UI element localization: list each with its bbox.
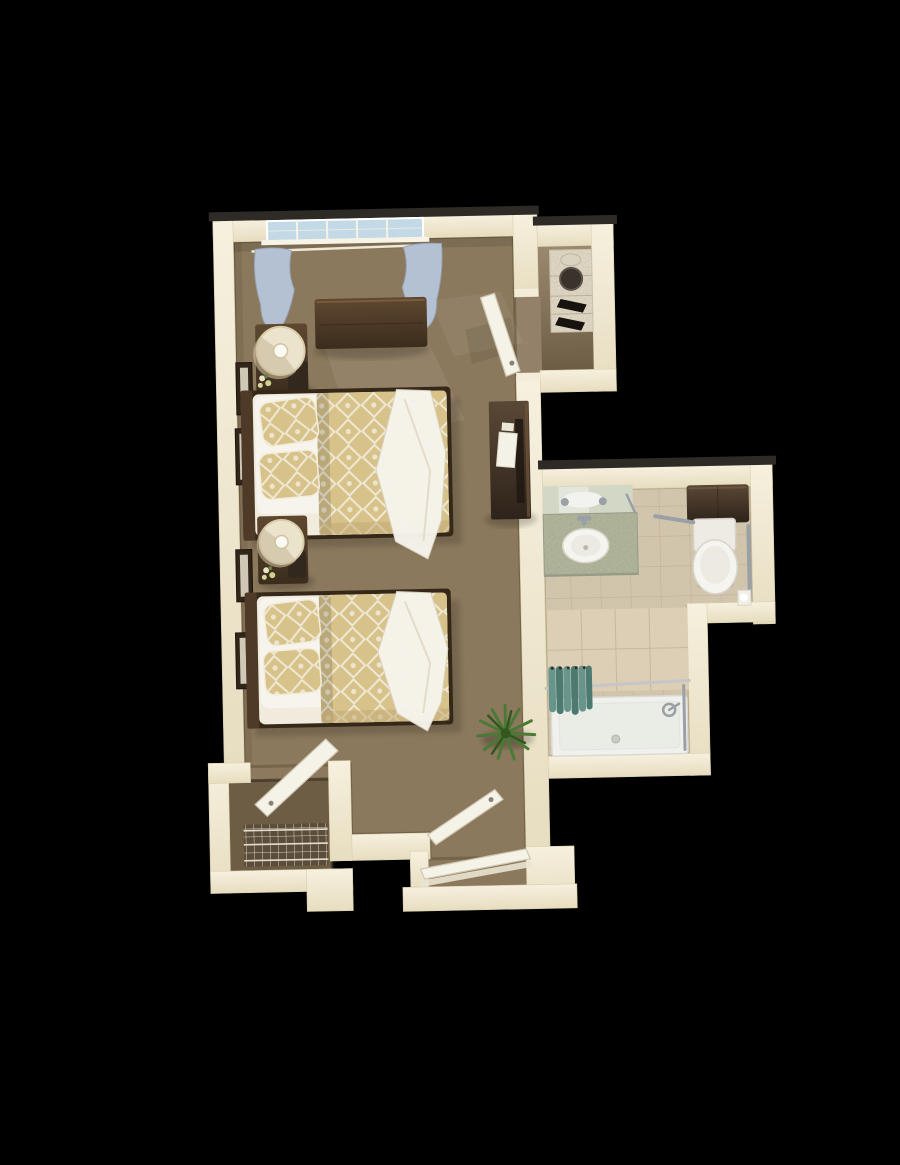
canvas [0,0,900,1165]
lamp-2-bulb [275,535,288,548]
wire-shelving [243,823,328,867]
shower-valve-pipe [684,686,685,750]
bed-1-pillow-1 [258,396,320,448]
nightstand-1 [252,323,314,400]
dresser [313,297,430,360]
closet-wall-right [328,761,352,861]
linen-closet-wall-right [591,223,617,391]
cabinet-seam [718,487,719,521]
wall-cap-linen-closet [533,215,617,226]
nightstand-2 [256,515,315,590]
bathroom-wall-right-upper [750,464,775,624]
basket [560,268,582,290]
desk-paper-large [496,432,517,467]
vanity [542,484,638,576]
stacked-linens [561,254,581,266]
jamb-bottom [516,372,540,381]
bed-2 [245,588,462,736]
entry-threshold-wall [403,884,577,912]
lamp-1-bulb [273,344,287,358]
shower-drain [612,735,620,743]
linen-closet-wall-bottom [540,369,616,393]
closet-wall-top-stub [208,763,250,784]
bathroom-wall-bottom [548,753,710,778]
wall-right-upper [513,214,539,297]
bed-2-pillow-2 [263,648,322,696]
jamb-top [514,289,538,298]
floor-plan [197,201,786,916]
closet-wall-step [306,869,353,912]
bathroom-wall-right-lower [687,603,711,775]
bed-1-pillow-2 [258,449,320,500]
bed-2-pillow-1 [263,599,322,647]
grab-bar-vertical [748,526,750,598]
shower [543,607,692,756]
floor-plan-render [0,0,900,1165]
linen-closet-shelving [550,249,594,332]
wall-art-3-mat [240,555,249,597]
desk-paper-small [501,422,514,431]
